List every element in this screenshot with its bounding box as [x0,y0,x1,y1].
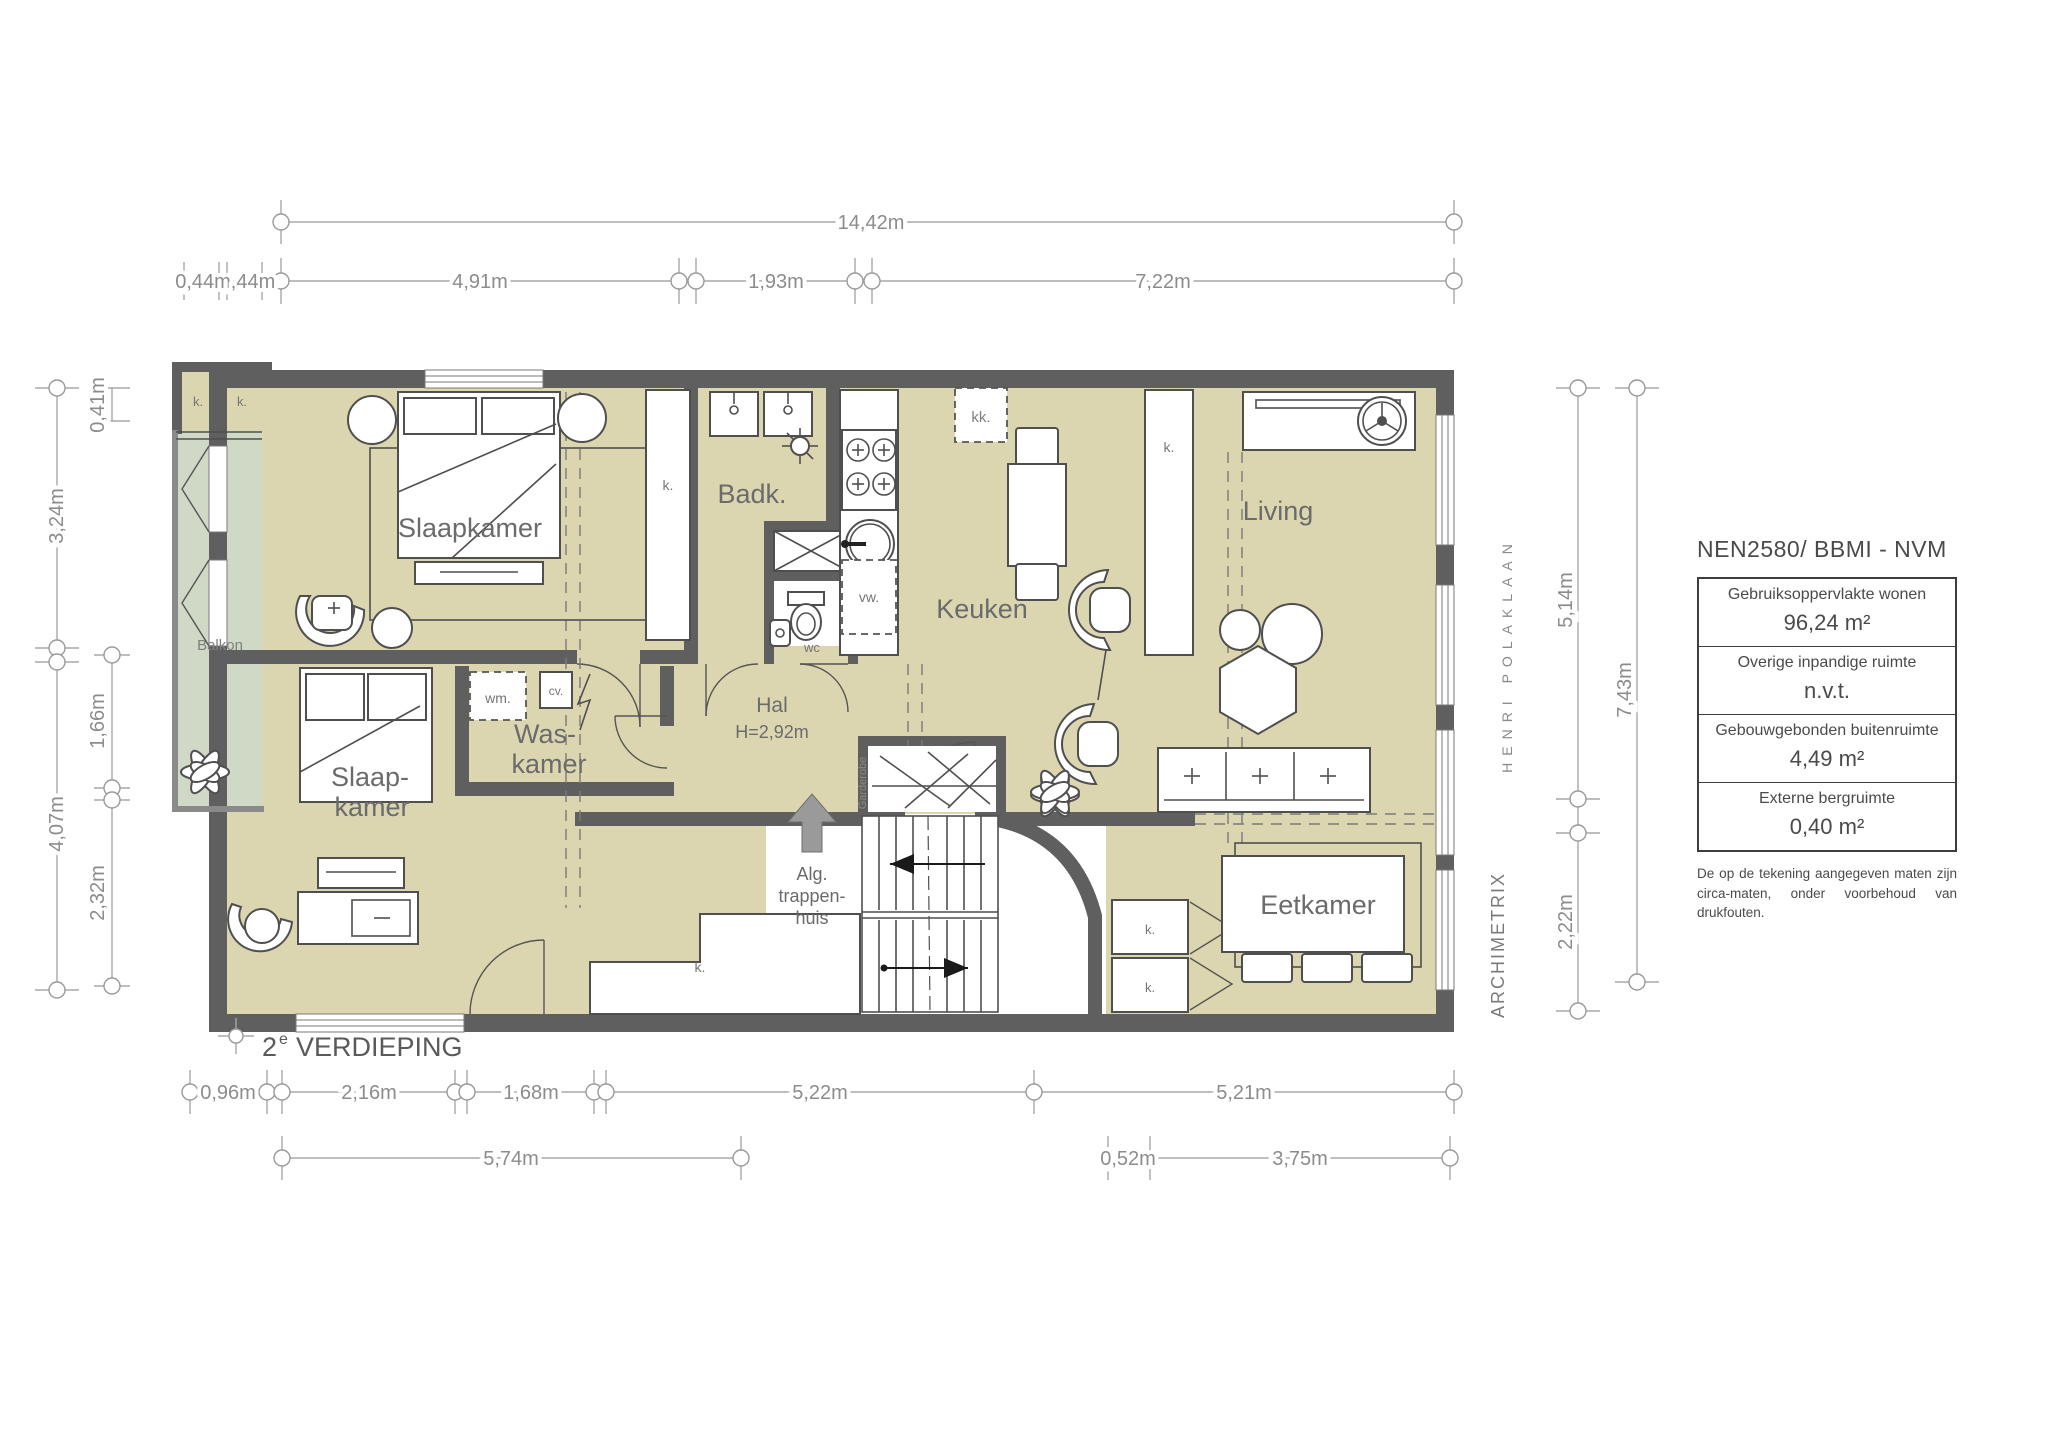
dimension-top-total: 14,42m [273,200,1462,244]
dimension-bottom-row1: 0,96m 2,16m 1,68m 5,22m 5,21m [182,1070,1462,1114]
label-closet-k2: k. [237,394,247,409]
label-bedroom2-1: Slaap- [331,762,409,792]
window-living-right-2 [1436,585,1454,705]
dim-b1-2: 2,16m [341,1082,397,1104]
dim-b2-2: 0,52m [1100,1148,1156,1170]
dim-left-inner-3: 2,32m [87,865,109,921]
legend-value: 0,40 m² [1705,814,1949,840]
dim-right-outer: 7,43m [1614,662,1636,718]
label-fridge: kk. [971,409,990,426]
label-hall: Hal [756,694,788,717]
legend-disclaimer: De op de tekening aangegeven maten zijn … [1697,864,1957,923]
label-hall-height: H=2,92m [735,722,809,742]
label-laundry-2: kamer [511,749,586,779]
legend-row-other-indoor: Overige inpandige ruimte n.v.t. [1699,646,1955,714]
label-dining: Eetkamer [1260,890,1376,920]
label-bedroom2-2: kamer [334,792,409,822]
chair-icon [1242,954,1292,982]
small-sink-icon [770,620,790,646]
window-living-right-3 [1436,730,1454,855]
street-name-vertical: HENRI POLAKLAAN [1499,537,1515,773]
label-toilet: wc [803,640,820,655]
legend-label: Overige inpandige ruimte [1705,654,1949,672]
closet-strip-bedroom1 [646,390,690,640]
legend-label: Externe bergruimte [1705,790,1949,808]
kitchen-table [1008,464,1066,566]
legend-title: NEN2580/ BBMI - NVM [1697,536,1957,563]
toilet-icon [770,581,848,646]
legend-value: 4,49 m² [1705,746,1949,772]
floor-title: 2 e VERDIEPING [262,1031,463,1062]
dim-b1-1: 0,96m [200,1082,256,1104]
balcony-door-opening-2 [209,560,227,646]
floor-title-text: VERDIEPING [296,1032,463,1062]
dimension-top-segments: 0,44m ,44m 4,91m 1,93m 7,22m [175,258,1462,304]
stool-icon [348,396,396,444]
label-laundry-1: Was- [514,719,576,749]
label-closet-k1: k. [193,394,203,409]
dim-seg-3: 4,91m [452,271,508,293]
label-kitchen: Keuken [936,594,1028,624]
legend-value: 96,24 m² [1705,610,1949,636]
dim-seg-2: ,44m [231,271,275,293]
label-dishwasher: vw. [859,589,879,605]
legend-panel: NEN2580/ BBMI - NVM Gebruiksoppervlakte … [1697,536,1957,923]
legend-table: Gebruiksoppervlakte wonen 96,24 m² Overi… [1697,577,1957,852]
wheel-icon [1358,397,1406,445]
stool-icon [558,394,606,442]
legend-row-living-area: Gebruiksoppervlakte wonen 96,24 m² [1699,579,1955,646]
dimension-left-inner: 0,41m 1,66m 2,32m [87,377,130,994]
dim-left-outer-2: 4,07m [46,796,68,852]
dim-b1-5: 5,21m [1216,1082,1272,1104]
legend-value: n.v.t. [1705,678,1949,704]
label-washer: wm. [484,690,511,706]
label-bathroom: Badk. [717,479,786,509]
legend-label: Gebouwgebonden buitenruimte [1705,722,1949,740]
label-living: Living [1243,496,1314,526]
legend-row-external-storage: Externe bergruimte 0,40 m² [1699,782,1955,850]
dim-b2-3: 3,75m [1272,1148,1328,1170]
label-wardrobe: Garderobe [857,757,869,810]
label-closet-k7: k. [1145,980,1155,995]
dimension-right-inner: 5,14m 2,22m [1555,380,1600,1019]
window-bedroom1-top [425,370,543,388]
dimension-bottom-row2: 5,74m 0,52m 3,75m [274,1136,1458,1180]
label-balcony: Balkon [197,637,243,654]
chair-icon [1302,954,1352,982]
label-bedroom1: Slaapkamer [398,513,542,543]
sofa-icon [1158,748,1370,812]
dim-left-inner-2: 1,66m [87,693,109,749]
stairs [862,816,998,1012]
brand-name-vertical: ARCHIMETRIX [1488,872,1508,1018]
dim-left-inner-1: 0,41m [87,377,109,433]
label-boiler: cv. [549,684,563,698]
dim-b1-4: 5,22m [792,1082,848,1104]
balcony-door-opening-1 [209,446,227,532]
floor-title-number: 2 [262,1032,277,1062]
chair-icon [1016,428,1058,466]
dim-seg-5: 7,22m [1135,271,1191,293]
shower-icon [774,531,848,571]
dim-right-inner-2: 2,22m [1555,894,1577,950]
dim-seg-4: 1,93m [748,271,804,293]
legend-label: Gebruiksoppervlakte wonen [1705,586,1949,604]
closet-strip-kitchen [1145,390,1193,655]
label-stairwell-1: Alg. [796,864,827,884]
legend-row-outdoor: Gebouwgebonden buitenruimte 4,49 m² [1699,714,1955,782]
floor-title-sup: e [279,1031,288,1048]
label-closet-k5: k. [695,959,706,975]
dim-b1-3: 1,68m [503,1082,559,1104]
label-stairwell-2: trappen- [778,886,845,906]
window-living-right-1 [1436,415,1454,545]
side-table-icon [1220,610,1260,650]
stove-icon [842,430,896,510]
label-stairwell-3: huis [795,908,828,928]
dim-left-outer-1: 3,24m [46,488,68,544]
dimension-right-outer: 7,43m [1614,380,1659,990]
window-dining-right [1436,870,1454,990]
dim-b2-1: 5,74m [483,1148,539,1170]
floorplan-page: Slaapkamer Badk. Keuken Living Slaap- ka… [0,0,2048,1448]
side-table-icon [372,608,412,648]
dimension-left-outer: 3,24m 4,07m [35,380,79,998]
wardrobe-area [868,746,996,812]
dim-seg-1: 0,44m [175,271,231,293]
window-office-bottom [296,1014,464,1032]
dim-right-inner-1: 5,14m [1555,572,1577,628]
chair-icon [1362,954,1412,982]
label-closet-k3: k. [663,477,674,493]
label-closet-k4: k. [1164,439,1175,455]
label-closet-k6: k. [1145,922,1155,937]
dim-total-width: 14,42m [838,212,905,234]
